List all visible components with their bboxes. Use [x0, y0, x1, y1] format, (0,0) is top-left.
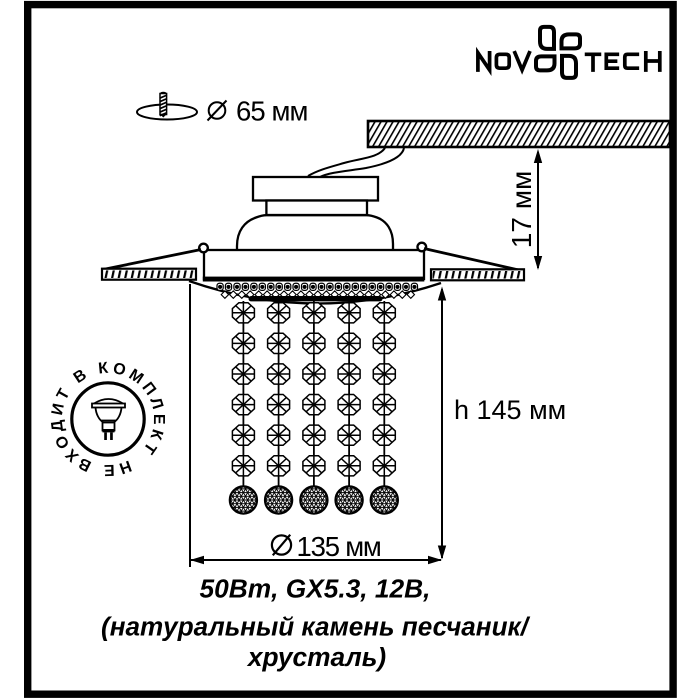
svg-text:65 мм: 65 мм	[236, 95, 308, 126]
svg-text:17 мм: 17 мм	[506, 171, 537, 248]
svg-text:(наmуральный камень песчаник/: (наmуральный камень песчаник/	[101, 611, 531, 641]
svg-text:50Вm, GX5.3, 12В,: 50Вm, GX5.3, 12В,	[200, 574, 431, 604]
svg-text:хрусmаль): хрусmаль)	[246, 642, 386, 672]
svg-text:h 145 мм: h 145 мм	[454, 395, 566, 425]
svg-text:135 мм: 135 мм	[297, 531, 381, 562]
